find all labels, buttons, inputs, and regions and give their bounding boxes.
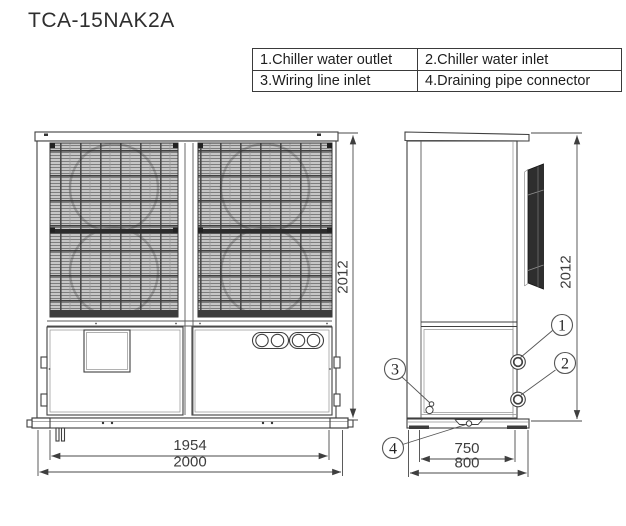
- side-body: [407, 141, 517, 418]
- callout-4-number: 4: [389, 441, 397, 458]
- front-access-window: [84, 330, 130, 372]
- callout-1-chiller-water-outlet: 1: [552, 315, 573, 336]
- callout-2-chiller-water-inlet: 2: [555, 353, 576, 374]
- water-inlet-connector: [511, 392, 526, 407]
- callout-2-number: 2: [561, 356, 569, 373]
- side-outer-depth-label: 800: [454, 455, 479, 472]
- side-view: [405, 132, 544, 429]
- front-outer-width-label: 2000: [173, 454, 206, 471]
- side-coil-grille: [525, 164, 544, 289]
- drawing-canvas: 2012 1954 2000 2012 750 800: [0, 0, 626, 526]
- callout-3-number: 3: [391, 362, 399, 379]
- side-top-cap: [405, 132, 529, 141]
- front-height-label: 2012: [335, 260, 352, 293]
- front-view: [27, 132, 353, 441]
- side-height-label: 2012: [558, 255, 575, 288]
- draining-pipe-connector-hole: [466, 421, 471, 426]
- callout-3-wiring-line-inlet: 3: [385, 359, 406, 380]
- front-height-dimension: 2012: [335, 133, 359, 420]
- callout-1-number: 1: [558, 318, 566, 335]
- front-top-cap: [35, 132, 338, 141]
- engineering-drawing-page: { "title": "TCA-15NAK2A", "legend": { "r…: [0, 0, 626, 526]
- water-outlet-connector: [511, 355, 526, 370]
- callout-4-draining-pipe-connector: 4: [383, 438, 404, 459]
- front-inner-width-label: 1954: [173, 437, 206, 454]
- side-base: [407, 419, 529, 429]
